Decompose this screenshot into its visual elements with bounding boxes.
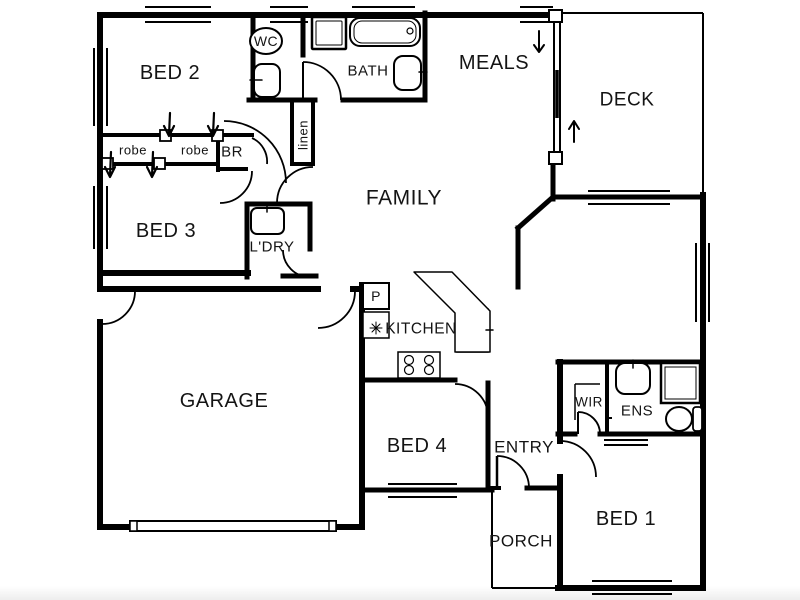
room-label-family: FAMILY — [366, 187, 442, 210]
garage-side-door-arc — [102, 291, 135, 324]
room-label-br: BR — [221, 144, 243, 161]
family-angled-wall — [518, 197, 553, 228]
room-label-kitchen: KITCHEN — [385, 321, 457, 338]
room-label-wc: WC — [254, 33, 278, 49]
garage-door-cap-right — [329, 521, 336, 531]
room-label-robe-2: robe — [181, 143, 209, 158]
room-label-ldry: L'DRY — [249, 239, 294, 256]
bath-shower-inner — [316, 21, 342, 45]
bed3-door-arc — [220, 171, 252, 203]
garage-door-panel — [130, 521, 336, 531]
wir-door-arc — [578, 412, 600, 434]
garage-entry-door-arc — [318, 291, 355, 328]
room-label-linen: linen — [296, 120, 311, 150]
cooktop — [398, 352, 440, 378]
fridge-snowflake — [370, 322, 382, 334]
room-label-bed-1: BED 1 — [596, 508, 656, 530]
room-label-porch: PORCH — [489, 532, 553, 551]
hall-door-arc — [277, 167, 313, 203]
deck-step-arrow-up — [569, 121, 579, 142]
bath-drain — [407, 28, 413, 34]
room-label-robe-1: robe — [119, 143, 147, 158]
bed4-door-arc — [455, 384, 488, 417]
room-label-meals: MEALS — [459, 52, 529, 74]
ens-toilet — [666, 407, 692, 431]
floorplan-page: BED 2BED 3FAMILYMEALSDECKGARAGEBED 4ENTR… — [0, 0, 800, 600]
bath-door-arc — [303, 62, 341, 100]
bath-basin — [394, 56, 421, 90]
cooktop-burner — [425, 356, 434, 365]
kitchen-bench — [414, 272, 490, 352]
entry-door-arc — [497, 456, 529, 488]
meals-step-arrow-down — [534, 31, 544, 52]
room-label-ens: ENS — [621, 403, 653, 420]
room-label-bath: BATH — [348, 63, 389, 80]
room-label-bed-4: BED 4 — [387, 435, 447, 457]
slider-jamb-bottom — [549, 152, 562, 164]
room-label-bed-2: BED 2 — [140, 62, 200, 84]
bed1-door-arc — [560, 441, 596, 477]
cooktop-burner — [405, 356, 414, 365]
floorplan-drawing: BED 2BED 3FAMILYMEALSDECKGARAGEBED 4ENTR… — [0, 0, 800, 600]
br-door-arc — [252, 138, 267, 164]
room-label-pantry: P — [371, 288, 381, 304]
room-label-entry: ENTRY — [494, 438, 554, 457]
cooktop-burner — [425, 366, 434, 375]
garage-door-cap-left — [130, 521, 137, 531]
slider-jamb-top — [549, 10, 562, 22]
room-label-bed-3: BED 3 — [136, 220, 196, 242]
ens-cistern — [693, 407, 702, 431]
room-label-garage: GARAGE — [180, 390, 269, 412]
cooktop-burner — [405, 366, 414, 375]
ens-shower-inner — [665, 367, 696, 399]
room-label-deck: DECK — [600, 90, 655, 111]
room-label-wir: WIR — [575, 395, 603, 410]
